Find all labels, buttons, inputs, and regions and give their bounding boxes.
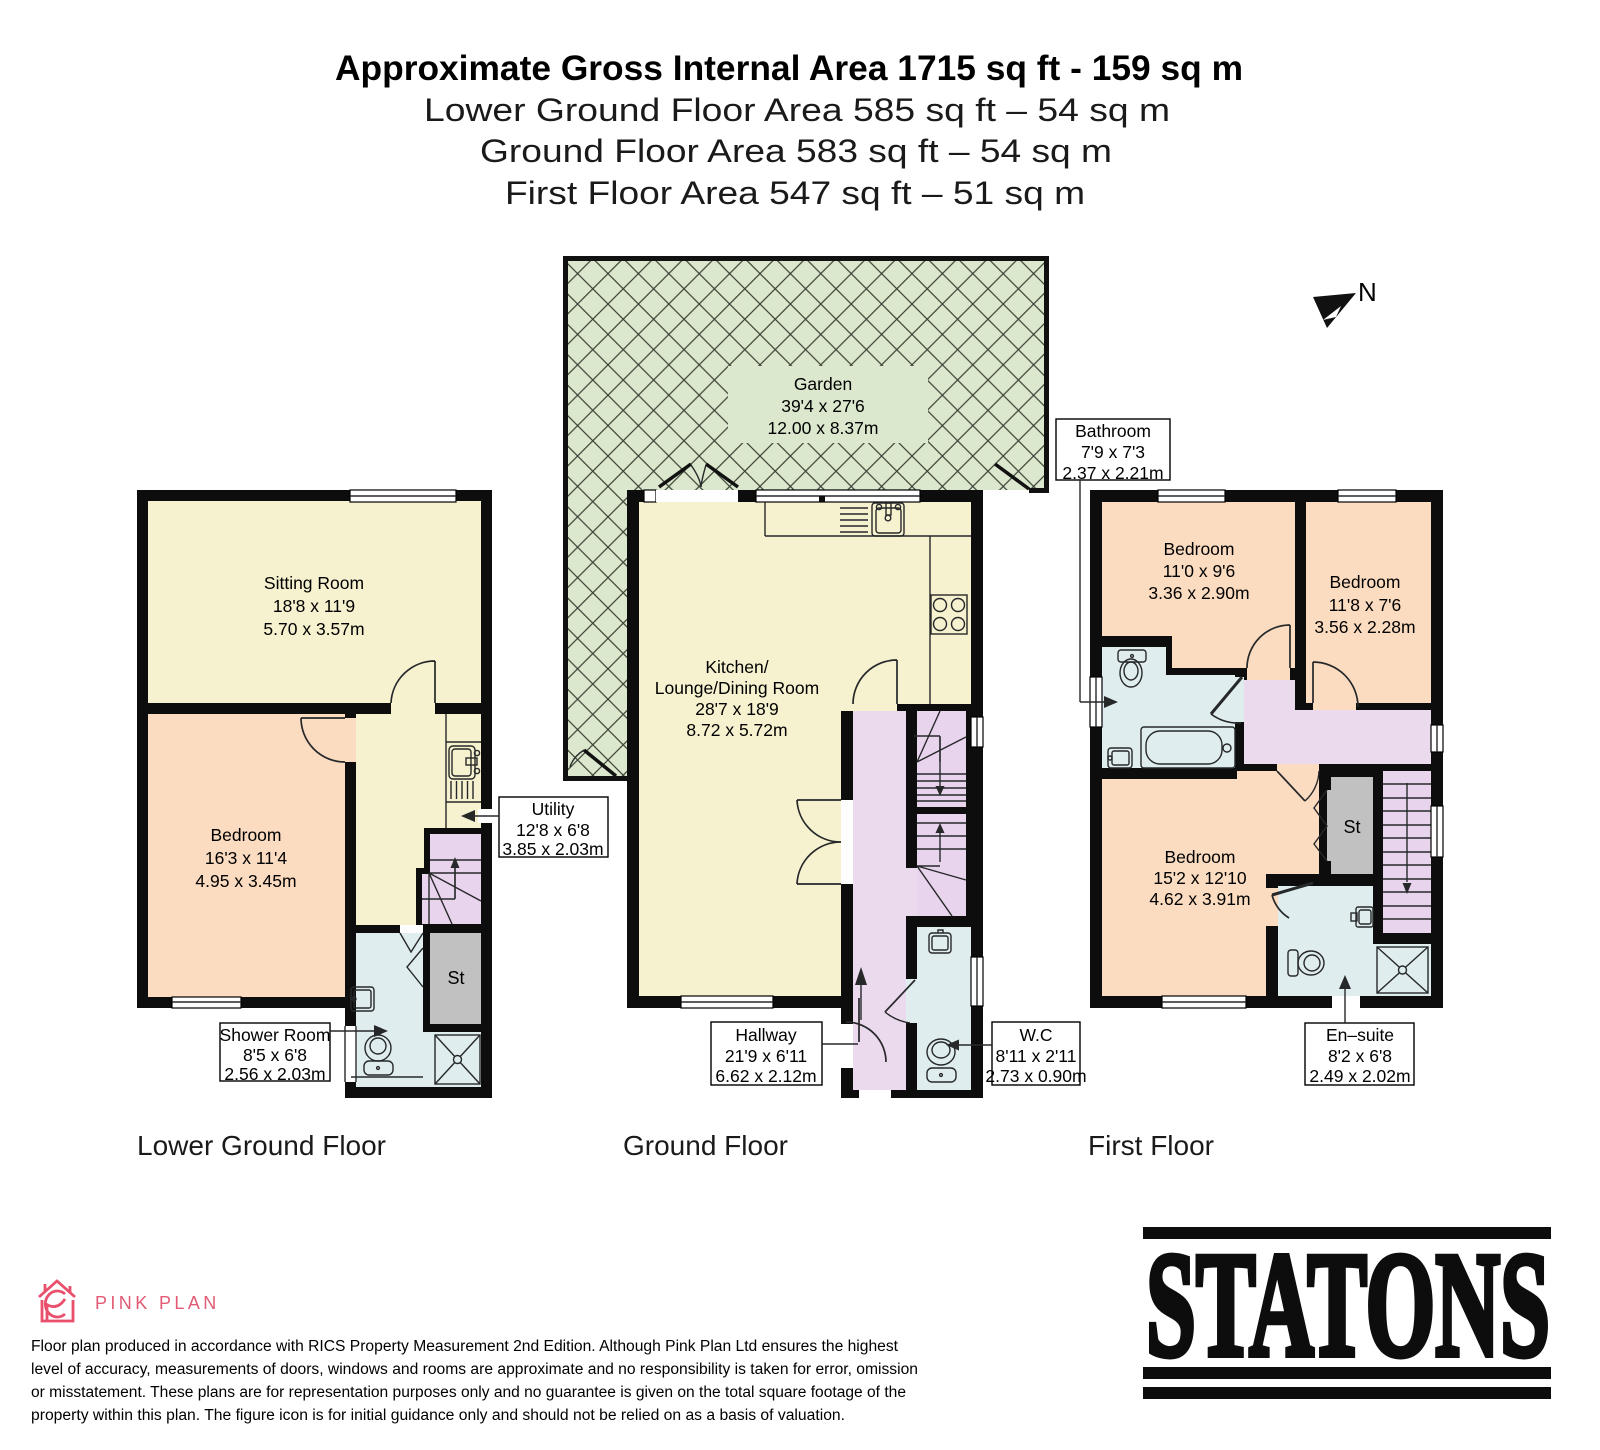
svg-text:8'5 x 6'8: 8'5 x 6'8 <box>243 1045 307 1065</box>
svg-text:28'7 x 18'9: 28'7 x 18'9 <box>695 699 779 719</box>
svg-text:Lower Ground Floor: Lower Ground Floor <box>137 1130 386 1161</box>
svg-text:Bedroom: Bedroom <box>1164 847 1235 867</box>
svg-text:En–suite: En–suite <box>1326 1025 1394 1045</box>
svg-text:4.95 x 3.45m: 4.95 x 3.45m <box>195 871 296 891</box>
svg-text:11'8 x 7'6: 11'8 x 7'6 <box>1329 595 1402 615</box>
svg-text:21'9 x 6'11: 21'9 x 6'11 <box>725 1046 807 1066</box>
svg-text:First Floor: First Floor <box>1088 1130 1214 1161</box>
svg-text:Utility: Utility <box>532 799 575 819</box>
svg-text:12.00 x 8.37m: 12.00 x 8.37m <box>768 418 879 438</box>
svg-text:4.62 x 3.91m: 4.62 x 3.91m <box>1149 889 1250 909</box>
svg-text:level of accuracy, measurement: level of accuracy, measurements of doors… <box>31 1361 918 1378</box>
svg-text:6.62 x 2.12m: 6.62 x 2.12m <box>715 1066 816 1086</box>
svg-text:Bedroom: Bedroom <box>210 825 281 845</box>
svg-text:N: N <box>1358 277 1377 307</box>
svg-text:Lower Ground Floor Area 585 sq: Lower Ground Floor Area 585 sq ft – 54 s… <box>424 92 1170 128</box>
svg-text:PINK PLAN: PINK PLAN <box>95 1293 220 1313</box>
svg-text:Sitting Room: Sitting Room <box>264 573 364 593</box>
svg-text:Hallway: Hallway <box>735 1025 797 1045</box>
svg-text:St: St <box>1343 817 1360 837</box>
svg-text:3.36 x 2.90m: 3.36 x 2.90m <box>1148 583 1249 603</box>
svg-text:Bedroom: Bedroom <box>1329 572 1400 592</box>
svg-text:16'3 x 11'4: 16'3 x 11'4 <box>205 848 288 868</box>
svg-text:15'2 x 12'10: 15'2 x 12'10 <box>1153 868 1247 888</box>
svg-text:7'9 x 7'3: 7'9 x 7'3 <box>1081 442 1145 462</box>
svg-text:Ground Floor Area 583 sq ft –: Ground Floor Area 583 sq ft – 54 sq m <box>480 133 1112 169</box>
svg-text:2.56 x 2.03m: 2.56 x 2.03m <box>224 1064 325 1084</box>
svg-text:W.C: W.C <box>1019 1025 1052 1045</box>
svg-text:Bedroom: Bedroom <box>1163 539 1234 559</box>
svg-text:5.70 x 3.57m: 5.70 x 3.57m <box>263 619 364 639</box>
svg-text:Garden: Garden <box>794 374 852 394</box>
svg-text:8.72 x 5.72m: 8.72 x 5.72m <box>686 720 787 740</box>
svg-text:First Floor Area 547 sq ft – 5: First Floor Area 547 sq ft – 51 sq m <box>505 175 1085 211</box>
svg-text:Kitchen/: Kitchen/ <box>705 657 768 677</box>
svg-text:property within this plan. The: property within this plan. The figure ic… <box>31 1407 845 1424</box>
svg-text:Bathroom: Bathroom <box>1075 421 1151 441</box>
svg-text:Lounge/Dining Room: Lounge/Dining Room <box>655 678 819 698</box>
svg-text:Shower Room: Shower Room <box>220 1025 331 1045</box>
svg-text:11'0 x 9'6: 11'0 x 9'6 <box>1163 561 1236 581</box>
svg-text:STATONS: STATONS <box>1146 1222 1550 1388</box>
svg-text:3.85 x 2.03m: 3.85 x 2.03m <box>502 839 603 859</box>
svg-text:Ground Floor: Ground Floor <box>623 1130 788 1161</box>
svg-text:or misstatement. These plans a: or misstatement. These plans are for rep… <box>31 1384 906 1401</box>
svg-text:St: St <box>447 968 464 988</box>
svg-text:3.56 x 2.28m: 3.56 x 2.28m <box>1314 617 1415 637</box>
svg-text:8'11 x 2'11: 8'11 x 2'11 <box>996 1046 1077 1066</box>
svg-text:Approximate Gross Internal Are: Approximate Gross Internal Area 1715 sq … <box>335 49 1243 88</box>
svg-text:2.37 x 2.21m: 2.37 x 2.21m <box>1062 463 1163 483</box>
svg-text:39'4 x 27'6: 39'4 x 27'6 <box>781 396 865 416</box>
svg-text:8'2 x 6'8: 8'2 x 6'8 <box>1328 1046 1392 1066</box>
svg-text:12'8 x 6'8: 12'8 x 6'8 <box>516 820 590 840</box>
svg-text:2.49 x 2.02m: 2.49 x 2.02m <box>1309 1066 1410 1086</box>
svg-text:2.73 x 0.90m: 2.73 x 0.90m <box>985 1066 1086 1086</box>
svg-text:18'8 x 11'9: 18'8 x 11'9 <box>273 596 355 616</box>
svg-text:Floor plan produced in accorda: Floor plan produced in accordance with R… <box>31 1338 899 1355</box>
